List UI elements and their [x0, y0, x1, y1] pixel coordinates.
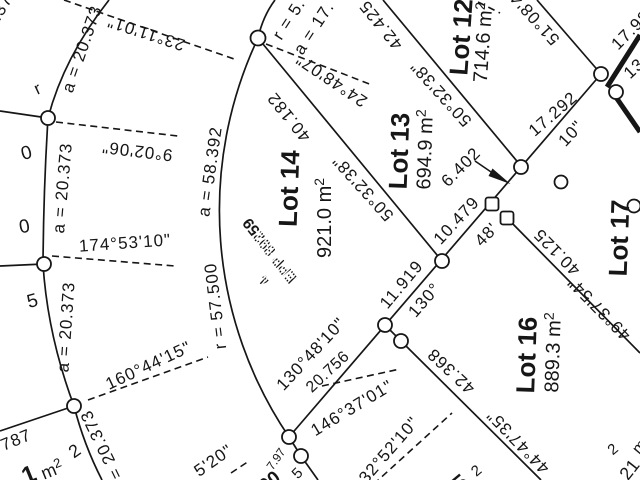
svg-text:2: 2	[604, 440, 621, 458]
svg-text:51°08'40": 51°08'40"	[495, 0, 564, 49]
svg-text:5'20": 5'20"	[191, 440, 237, 480]
svg-text:Lot 16: Lot 16	[510, 316, 543, 394]
svg-text:9°02'06": 9°02'06"	[100, 137, 173, 165]
svg-text:160°44'15": 160°44'15"	[103, 337, 195, 393]
svg-text:5: 5	[289, 465, 307, 480]
svg-text:r = 57.500: r = 57.500	[201, 262, 230, 351]
svg-text:174°53'10": 174°53'10"	[78, 230, 171, 255]
svg-text:a = 20.373: a = 20.373	[53, 281, 78, 373]
svg-text:15: 15	[437, 469, 475, 480]
svg-text:42.425: 42.425	[355, 0, 406, 54]
svg-text:0: 0	[19, 142, 35, 165]
svg-text:21: 21	[615, 455, 640, 480]
svg-text:921.0 m2: 921.0 m2	[311, 178, 336, 258]
svg-text:Lot 17: Lot 17	[603, 199, 636, 277]
svg-text:5: 5	[25, 290, 41, 313]
svg-text:0: 0	[17, 216, 31, 239]
svg-text:48': 48'	[471, 219, 502, 250]
svg-text:2: 2	[65, 440, 85, 462]
svg-text:44°47'35": 44°47'35"	[483, 405, 553, 477]
svg-text:.373: .373	[0, 0, 22, 24]
svg-text:2: 2	[468, 462, 485, 480]
svg-text:7.97: 7.97	[264, 445, 289, 472]
svg-text:Lot 13: Lot 13	[383, 112, 416, 190]
svg-text:a = 20.373: a = 20.373	[58, 3, 106, 95]
svg-text:1: 1	[18, 460, 41, 480]
svg-text:m2: m2	[37, 454, 66, 480]
svg-text:40.125: 40.125	[530, 225, 584, 280]
svg-text:Lot 14: Lot 14	[273, 149, 306, 227]
svg-text:r: r	[31, 78, 45, 98]
svg-text:32°52'10": 32°52'10"	[355, 413, 423, 480]
svg-text:24°48'07": 24°48'07"	[292, 49, 370, 111]
svg-text:a = 20.373: a = 20.373	[49, 142, 76, 234]
svg-text:49°37'54": 49°37'54"	[564, 273, 635, 345]
svg-text:6.402: 6.402	[437, 143, 484, 190]
svg-text:90: 90	[255, 467, 285, 480]
svg-text:m: m	[629, 436, 640, 457]
svg-text:4: 4	[257, 272, 273, 290]
svg-text:23°11'01": 23°11'01"	[105, 12, 187, 55]
